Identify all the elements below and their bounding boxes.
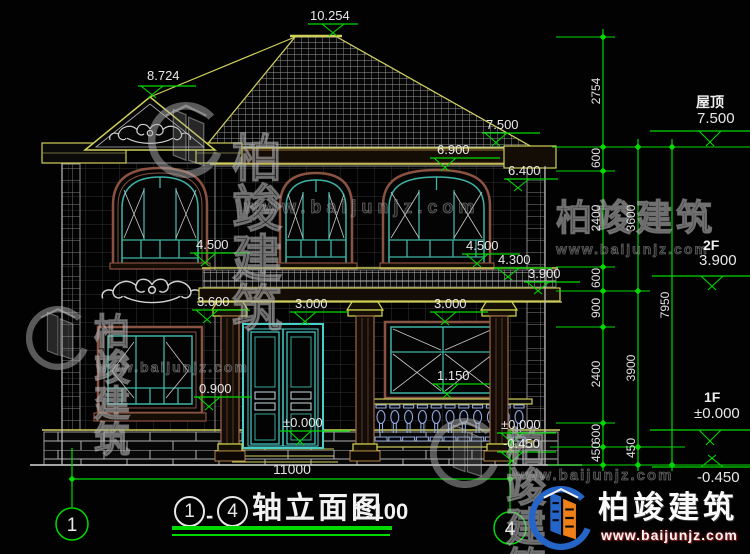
elevation-marker-label: 7.500 [486, 118, 519, 131]
elevation-marker-label: 4.500 [196, 238, 229, 251]
elevation-marker-label: -0.450 [503, 437, 540, 450]
company-logo-icon [528, 486, 594, 550]
elevation-marker-label: 10.254 [310, 9, 350, 22]
drawing-scale: 1:100 [352, 501, 408, 523]
dim-text: 450 [590, 430, 602, 474]
elevation-marker-label: 6.900 [437, 143, 470, 156]
f1-level-value: ±0.000 [694, 406, 740, 421]
dim-text: 2754 [590, 69, 602, 113]
main-hip-roof [150, 36, 532, 147]
gable-pediment [85, 97, 215, 150]
elevation-marker-label: 4.500 [466, 239, 499, 252]
elevation-linework [0, 0, 750, 554]
elevation-marker-label: ±0.000 [501, 418, 541, 431]
cad-elevation-canvas: 柏竣建筑 www.baijunjz.com 柏竣建筑 www.baijunjz.… [0, 0, 750, 554]
ground-level-value: -0.450 [697, 470, 740, 485]
company-logo-url: www.baijunjz.com [601, 528, 738, 542]
f1-level-label: 1F [704, 390, 720, 404]
roof-level-value: 7.500 [697, 111, 735, 126]
title-axis-from-bubble: 1 [174, 496, 205, 527]
elevation-marker-label: 4.300 [498, 253, 531, 266]
axis-bubble-4-number: 4 [494, 520, 526, 539]
dim-text: 7950 [659, 283, 671, 327]
title-underline-thin [172, 534, 390, 536]
dim-text: 3900 [625, 346, 637, 390]
window-1f-right [385, 322, 501, 398]
elevation-marker-label: ±0.000 [283, 416, 323, 429]
f2-level-label: 2F [703, 238, 719, 252]
window-1f-left [94, 327, 206, 421]
elevation-marker-label: 3.000 [434, 297, 467, 310]
window-2f-middle [277, 173, 357, 269]
dim-text: 2400 [590, 196, 602, 240]
dim-text: 600 [590, 136, 602, 180]
elevation-marker-label: 0.900 [199, 382, 232, 395]
elevation-marker-label: 3.000 [295, 297, 328, 310]
f2-level-value: 3.900 [699, 253, 737, 268]
company-logo-brand: 柏竣建筑 [598, 492, 738, 523]
title-underline-thick [172, 526, 392, 530]
porch-roof [197, 268, 562, 302]
title-axis-separator: - [206, 505, 213, 527]
elevation-marker-label: 6.400 [508, 164, 541, 177]
elevation-marker-label: 1.150 [437, 369, 470, 382]
dim-text: 2400 [590, 352, 602, 396]
dim-text: 900 [590, 286, 602, 330]
roof-level-label: 屋顶 [696, 95, 724, 109]
elevation-marker-label: 3.900 [528, 267, 561, 280]
elevation-marker-label: 8.724 [147, 69, 180, 82]
quoin-left [62, 164, 80, 430]
elevation-marker-label: 3.600 [197, 295, 230, 308]
total-width-dim: 11000 [260, 462, 324, 476]
dim-text: 450 [625, 426, 637, 470]
title-axis-to-bubble: 4 [217, 496, 248, 527]
dim-text: 3600 [625, 196, 637, 240]
building-facade [30, 36, 582, 465]
axis-bubble-1-number: 1 [56, 516, 88, 535]
